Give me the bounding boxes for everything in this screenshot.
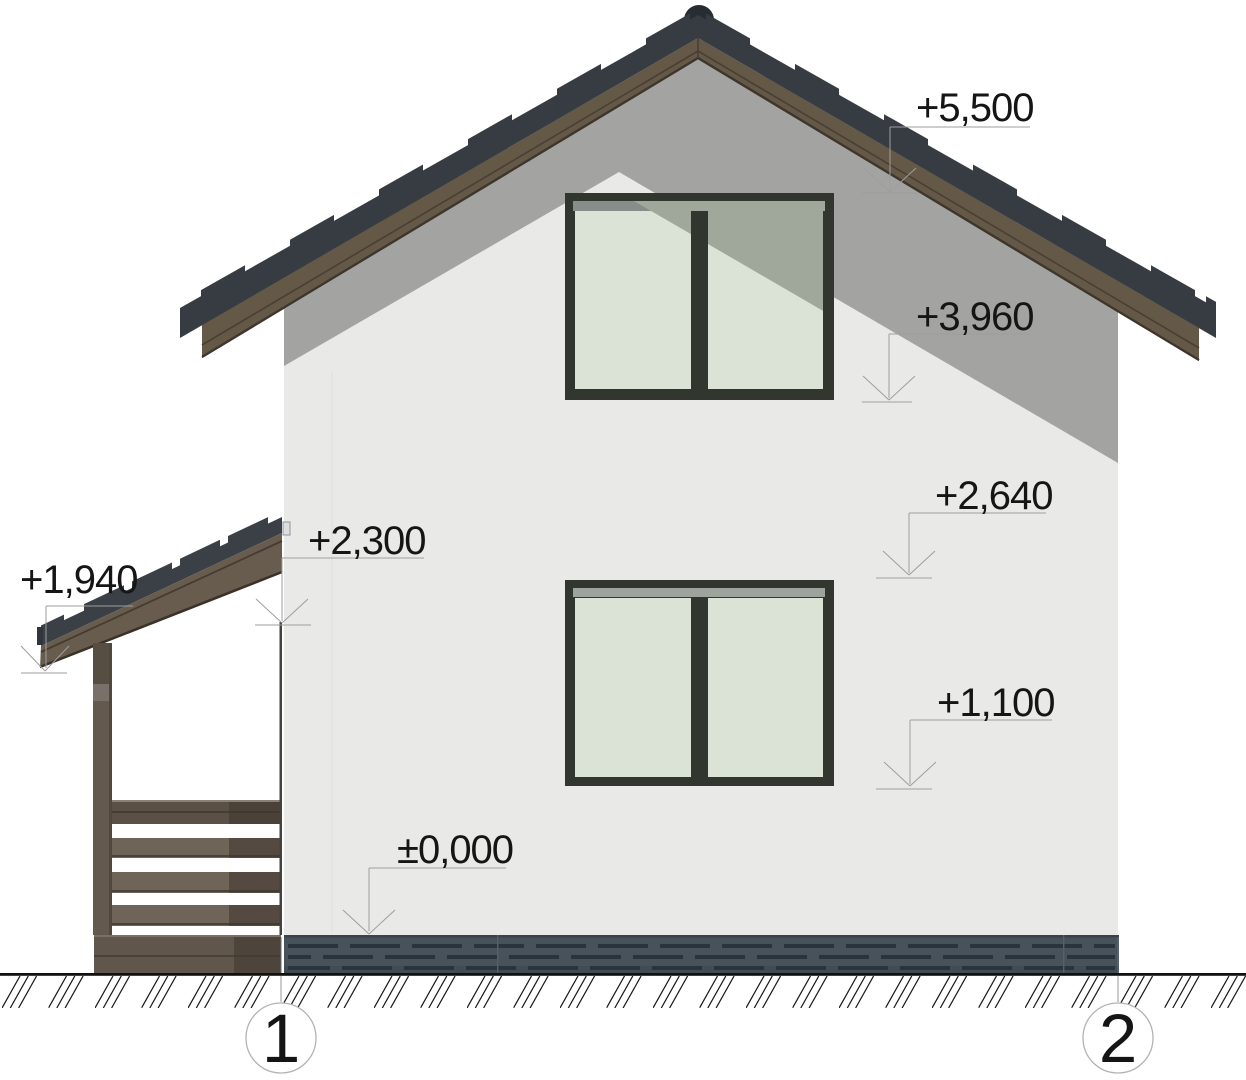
- svg-text:±0,000: ±0,000: [397, 828, 513, 872]
- svg-text:+3,960: +3,960: [916, 295, 1033, 339]
- svg-text:+1,100: +1,100: [937, 681, 1054, 725]
- svg-text:+1,940: +1,940: [20, 558, 137, 602]
- svg-text:+2,300: +2,300: [308, 519, 425, 563]
- svg-text:2: 2: [1099, 1000, 1137, 1077]
- svg-text:+2,640: +2,640: [935, 474, 1052, 518]
- svg-text:+5,500: +5,500: [916, 86, 1033, 130]
- svg-text:1: 1: [262, 1000, 300, 1077]
